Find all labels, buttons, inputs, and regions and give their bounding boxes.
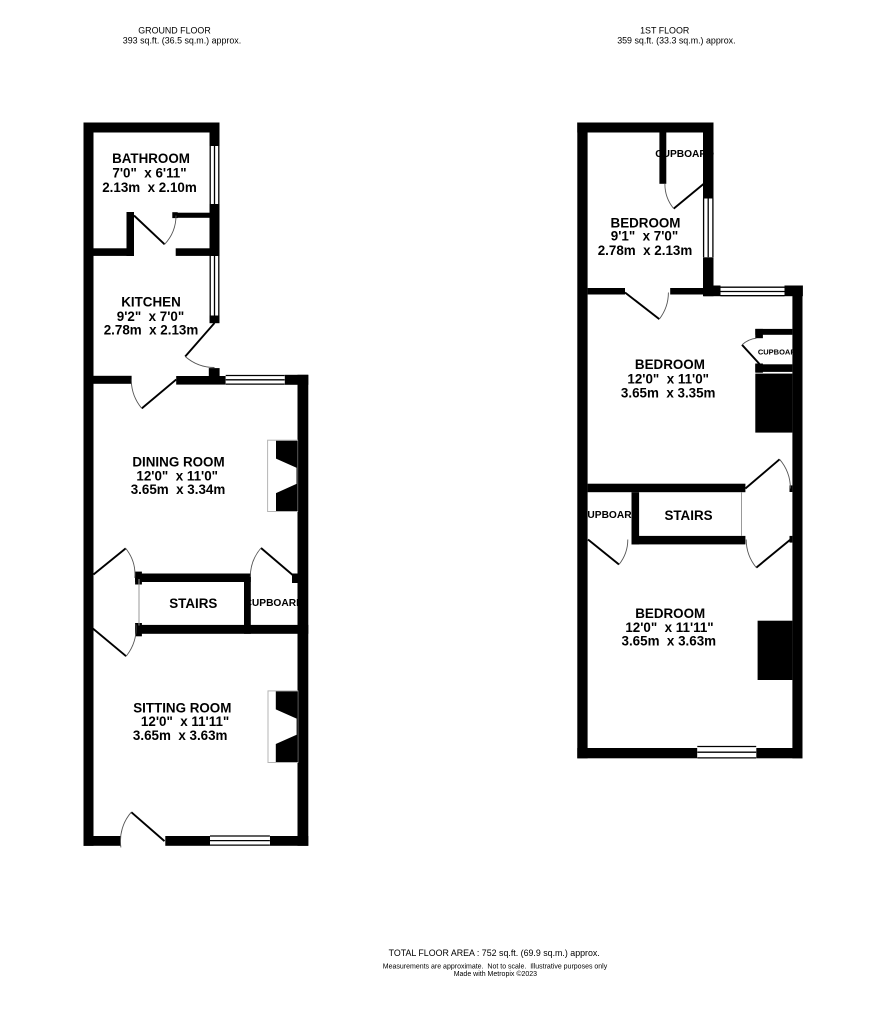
svg-text:CUPBOARD: CUPBOARD: [580, 510, 639, 521]
svg-text:STAIRS: STAIRS: [169, 596, 217, 611]
svg-text:7'0" x 6'11": 7'0" x 6'11": [112, 166, 186, 181]
svg-text:3.65m x 3.63m: 3.65m x 3.63m: [133, 728, 228, 743]
svg-text:KITCHEN: KITCHEN: [121, 294, 181, 309]
svg-text:359 sq.ft. (33.3 sq.m.) approx: 359 sq.ft. (33.3 sq.m.) approx.: [617, 35, 735, 45]
svg-text:BEDROOM: BEDROOM: [635, 357, 705, 372]
svg-text:Measurements are approximate.: Measurements are approximate. Not to sca…: [383, 963, 608, 970]
svg-text:2.78m x 2.13m: 2.78m x 2.13m: [104, 322, 199, 337]
svg-text:2.13m x 2.10m: 2.13m x 2.10m: [102, 180, 197, 195]
svg-text:12'0" x 11'11": 12'0" x 11'11": [141, 714, 229, 729]
svg-text:2.78m x 2.13m: 2.78m x 2.13m: [598, 243, 693, 258]
svg-text:393 sq.ft. (36.5 sq.m.) approx: 393 sq.ft. (36.5 sq.m.) approx.: [123, 35, 241, 45]
svg-text:1ST FLOOR: 1ST FLOOR: [640, 26, 689, 36]
svg-text:3.65m x 3.34m: 3.65m x 3.34m: [131, 482, 226, 497]
svg-text:STAIRS: STAIRS: [664, 508, 712, 523]
svg-text:Made with Metropix ©2023: Made with Metropix ©2023: [454, 970, 537, 978]
svg-text:TOTAL FLOOR AREA : 752 sq.ft.: TOTAL FLOOR AREA : 752 sq.ft. (69.9 sq.m…: [389, 948, 600, 958]
svg-text:12'0" x 11'0": 12'0" x 11'0": [627, 371, 709, 386]
svg-text:9'1" x 7'0": 9'1" x 7'0": [611, 229, 678, 244]
svg-text:GROUND FLOOR: GROUND FLOOR: [138, 26, 210, 36]
svg-text:BEDROOM: BEDROOM: [635, 606, 705, 621]
svg-text:3.65m x 3.63m: 3.65m x 3.63m: [622, 633, 717, 648]
svg-text:DINING ROOM: DINING ROOM: [132, 454, 224, 469]
svg-text:3.65m x 3.35m: 3.65m x 3.35m: [621, 386, 716, 401]
svg-text:CUPBOARD: CUPBOARD: [245, 598, 304, 609]
svg-text:BATHROOM: BATHROOM: [112, 151, 190, 166]
